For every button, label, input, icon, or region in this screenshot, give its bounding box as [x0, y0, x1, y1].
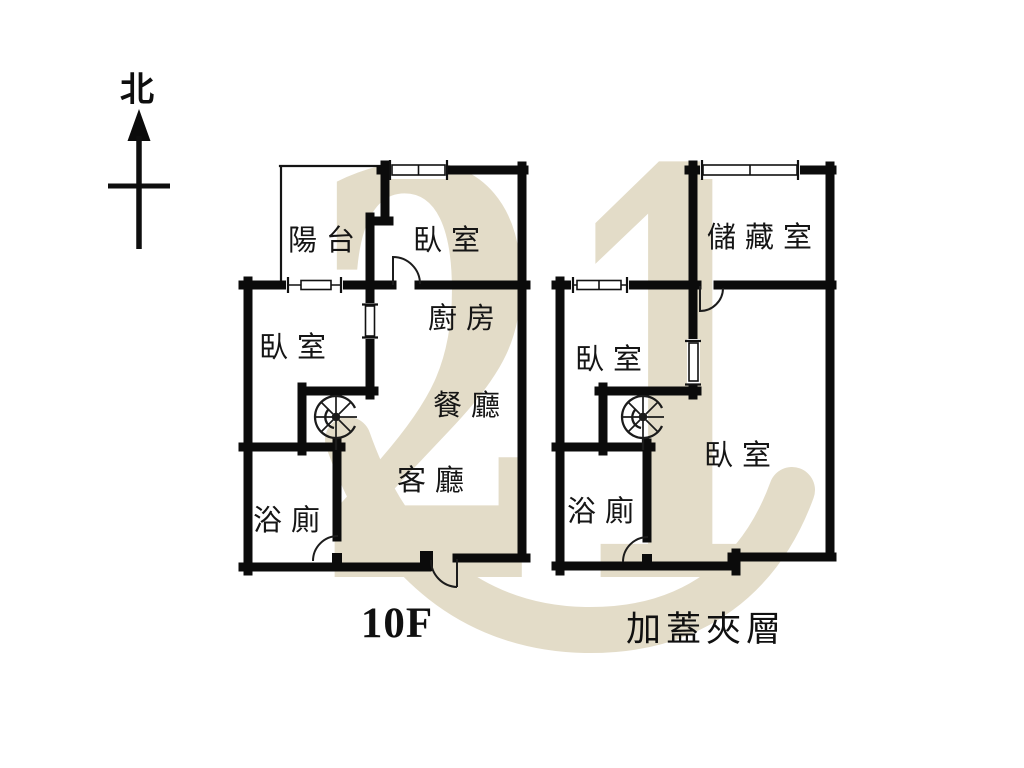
room-label-bedroom-top: 臥室: [413, 224, 489, 257]
north-label: 北: [120, 72, 154, 109]
window-symbol-top: [389, 160, 448, 180]
window-symbol-top-right: [700, 160, 800, 180]
window-symbol-interior: [362, 303, 378, 339]
room-label-bathroom-left: 浴廁: [253, 504, 329, 537]
floorplan-page: 21 北: [0, 0, 1024, 768]
window-symbol-left-right-unit: [571, 277, 629, 293]
north-compass: 北: [108, 72, 170, 249]
window-symbol-left: [286, 277, 343, 293]
room-label-bathroom-right: 浴廁: [567, 495, 643, 528]
floor-caption-left: 10F: [361, 600, 433, 647]
room-label-balcony: 陽台: [288, 224, 364, 257]
room-label-kitchen: 廚房: [428, 302, 504, 335]
bath-door-jamb-right: [642, 554, 652, 569]
window-symbol-interior-right: [685, 339, 701, 385]
room-label-storage: 儲藏室: [707, 221, 821, 254]
room-label-living: 客廳: [397, 464, 473, 497]
room-label-bedroom-side: 臥室: [259, 331, 335, 364]
room-label-dining: 餐廳: [433, 389, 509, 422]
floor-caption-right: 加蓋夾層: [626, 610, 786, 649]
floorplan-canvas: 21 北: [0, 0, 1024, 768]
bath-door-jamb: [332, 553, 342, 568]
room-label-bedroom-large: 臥室: [704, 439, 780, 472]
room-label-bedroom-small: 臥室: [575, 343, 651, 376]
